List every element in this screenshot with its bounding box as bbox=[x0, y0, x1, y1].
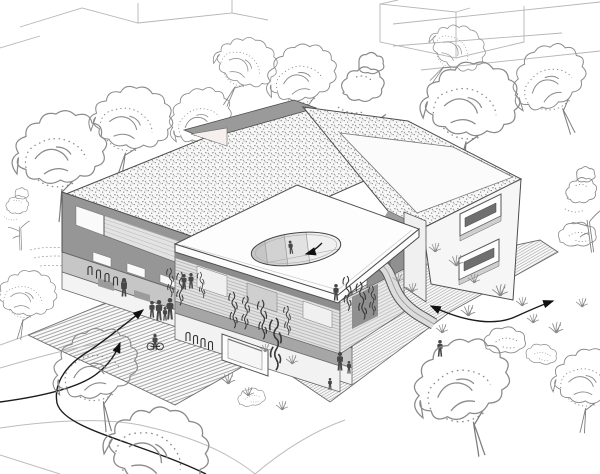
grass-tuft bbox=[576, 298, 588, 307]
grass-tuft bbox=[436, 324, 448, 333]
grass-tuft bbox=[276, 401, 288, 410]
background-buildings bbox=[0, 0, 600, 70]
tree bbox=[544, 343, 600, 438]
tree bbox=[408, 11, 494, 99]
grass-tuft bbox=[527, 314, 539, 323]
tree bbox=[78, 388, 223, 474]
bush bbox=[525, 341, 559, 366]
bush bbox=[484, 327, 525, 353]
street-line bbox=[0, 2, 600, 70]
tree bbox=[402, 329, 529, 469]
grass-tuft bbox=[549, 322, 563, 333]
tree bbox=[4, 188, 30, 251]
grass-tuft bbox=[516, 297, 528, 306]
architectural-sketch bbox=[0, 0, 600, 474]
grass-tuft bbox=[461, 305, 475, 316]
tree bbox=[500, 34, 600, 150]
bush bbox=[558, 222, 596, 246]
